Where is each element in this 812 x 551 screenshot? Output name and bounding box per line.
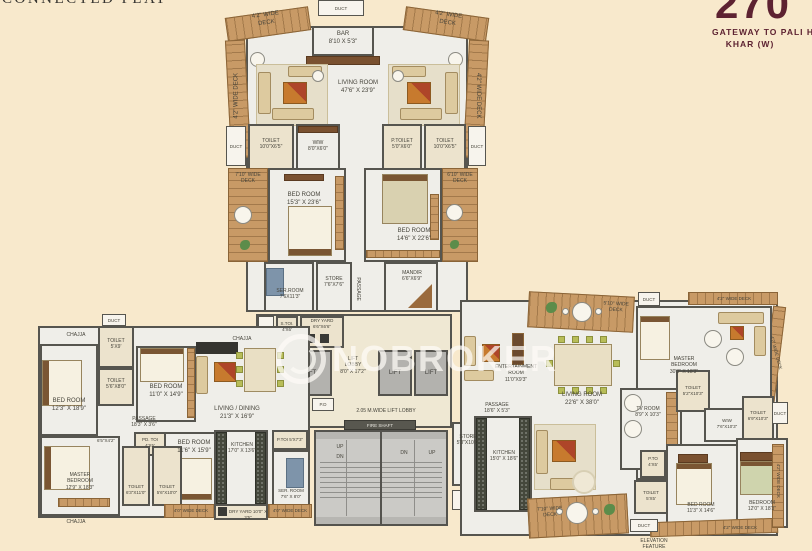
label-bar: BAR8'10 X 5'3" (314, 31, 372, 46)
dining-chair (600, 336, 607, 343)
deck-table (572, 302, 592, 322)
kitchen-counter (476, 418, 487, 510)
duct-rw-bottom: DUCT (630, 519, 658, 532)
toilet-lw-3 (122, 446, 150, 506)
coffee-table (482, 344, 500, 362)
label-store-top: STORE7'6"X7'6" (317, 276, 351, 289)
label-master-bedroom-rw: MASTERBEDROOM30'3" X 18'3" (656, 356, 712, 375)
label-living-room-top: LIVING ROOM47'6" X 23'9" (318, 80, 398, 95)
wardrobe-shelf (298, 126, 338, 133)
label-toilet-rw-1: TOILET5'2"X10'3" (676, 385, 710, 396)
wardrobe (58, 498, 110, 507)
deck-chair (562, 308, 569, 315)
deck-table (234, 206, 252, 224)
logo-number: 270 (688, 0, 812, 25)
label-entertainment-room: ENTERTAINMENTROOM11'0"X9'3" (490, 364, 542, 383)
duct-rw-mid: DUCT (772, 402, 788, 424)
lounge-chair (624, 420, 642, 438)
lift-3: LIFT (414, 350, 448, 396)
bed (288, 206, 332, 256)
label-bedroom-lw-1: BED ROOM12'3" X 18'9" (44, 398, 94, 413)
label-master-bedroom-lw: MASTERBEDROOM12'9" X 18'3" (50, 472, 110, 491)
page-title: CONNECTED FLAT (2, 0, 167, 8)
sofa (464, 336, 476, 366)
label-kitchen-rw: KITCHEN15'0" X 18'6" (482, 450, 526, 463)
label-mandir: MANDIR6'6"X6'9" (392, 270, 432, 283)
label-bedroom-top-left: BED ROOM15'3" X 23'6" (276, 192, 332, 207)
label-toilet-top-right: TOILET10'0"X6'5" (426, 138, 464, 151)
label-deck-mid-right: 6'10" WIDEDECK (443, 172, 477, 185)
label-powder-toilet-lw2: P.TOI 5'X7'3" (273, 437, 307, 443)
wardrobe (335, 176, 344, 250)
bed (382, 174, 428, 224)
bed (140, 348, 184, 382)
dining-chair (277, 352, 284, 359)
deck-table (566, 502, 588, 524)
coffee-table (214, 362, 236, 382)
lounge-chair (726, 348, 744, 366)
label-stair-up: UP (332, 444, 348, 450)
headboard-band (740, 452, 774, 461)
label-deck-rw-5: 4'2" WIDE DECK (702, 525, 778, 531)
coffee-table (407, 82, 431, 104)
dining-table (554, 344, 612, 386)
sofa (536, 430, 548, 474)
wood-band (366, 250, 440, 258)
dining-chair (277, 366, 284, 373)
label-toilet-lw-1: TOILET5'X9' (99, 338, 133, 351)
label-ptoilet-top-right: P.TOILET5'0"X6'0" (383, 138, 421, 151)
label-bedroom-lw-3: BED ROOM11'6" X 15'9" (170, 440, 218, 455)
label-living-dining: LIVING / DINING21'3" X 16'9" (204, 406, 270, 421)
label-deck-lw-1: 4'0" WIDE DECK (166, 508, 216, 514)
label-toilet-rw-3: TOILET5'X5' (635, 490, 667, 501)
label-wiw-top: WIW8'0"X6'0" (298, 140, 338, 153)
sofa (445, 72, 458, 114)
label-deck-mid-left: 7'10" WIDEDECK (229, 172, 267, 185)
label-toilet-top-left: TOILET10'0"X6'5" (250, 138, 292, 151)
headboard-band (678, 454, 708, 463)
bed (676, 463, 712, 505)
label-bedroom-rw-1: BED ROOM11'3" X 14'6" (670, 502, 732, 515)
label-deck-rw-top: 5'10" WIDEDECK (598, 300, 635, 314)
dining-chair (236, 366, 243, 373)
logo-location: KHAR (W) (700, 39, 800, 49)
washing-machine (218, 507, 227, 516)
fire-shaft: FIRE SHAFT (344, 420, 416, 430)
label-deck-rw-4: 7'10" WIDEDECK (532, 505, 569, 519)
stair-rail (414, 440, 415, 516)
sofa (400, 108, 442, 120)
label-chajja: CHAJJA (220, 336, 264, 342)
label-servant-room-top: SER.ROOM7'6X11'3" (268, 288, 312, 301)
dining-chair (236, 380, 243, 387)
label-chajja: CHAJJA (54, 519, 98, 525)
label-deck-lw-2: 4'0" WIDE DECK (269, 508, 311, 514)
label-bedroom-lw-2: BED ROOM11'0" X 14'9" (140, 384, 192, 399)
label-wiw-rw: WIW7'6"X10'3" (710, 418, 744, 429)
dining-chair (558, 336, 565, 343)
label-lobby-width: 2.05 M.WIDE LIFT LOBBY (324, 408, 448, 414)
label-dry-yard-core: DRY YARD6'6"X6'6" (302, 318, 342, 329)
label-powder-toilet-rw: P.TO4'X5' (640, 456, 666, 467)
lift-2: LIFT (378, 350, 412, 396)
dining-chair (586, 336, 593, 343)
label-tv-room: TV ROOM8'9" X 10'3" (628, 406, 668, 419)
dining-chair (546, 360, 553, 367)
sofa (754, 326, 766, 356)
label-toilet-lw-4: TOILET5'6"X10'0" (151, 484, 183, 495)
wardrobe (187, 348, 195, 418)
label-dry-yard-lw: DRY YARD 10'0" X 3'5" (228, 509, 268, 520)
sofa (718, 312, 764, 324)
coffee-table (283, 82, 307, 104)
washing-machine (320, 334, 329, 343)
tv-wall (512, 333, 524, 365)
label-bedroom-top-right: BED ROOM14'6" X 22'6" (388, 228, 440, 243)
floor-plan-canvas: CONNECTED FLAT 270 GATEWAY TO PALI HILL … (0, 0, 812, 551)
label-toilet-lw-2: TOILET5'6"X8'0" (99, 378, 133, 391)
label-chajja: CHAJJA (54, 332, 98, 338)
label-lift-lobby: LIFTLOBBY8'0" X 17'2" (330, 356, 376, 375)
sofa (258, 72, 271, 114)
label-stair-dn: DN (332, 454, 348, 460)
duct-top: DUCT (318, 0, 364, 16)
label-toilet-lw-3: TOILET6'3"X11'0" (121, 484, 151, 495)
label-toilet-rw-2: TOILET6'9"X10'3" (742, 410, 774, 421)
coffee-table (552, 440, 576, 462)
round-rug (572, 470, 596, 494)
label-deck-rw-6: 4'2" WIDE DECK (775, 448, 781, 514)
sofa (272, 108, 314, 120)
console (284, 174, 324, 181)
dining-table (244, 348, 276, 392)
dining-chair (613, 360, 620, 367)
label-deck-left-vertical: 4'2" WIDE DECK (233, 53, 241, 139)
label-passage-lw: PASSAGE18'3" X 3'6" (116, 416, 172, 429)
deck-chair (592, 508, 599, 515)
label-kitchen-lw: KITCHEN17'0" X 13'6" (220, 442, 264, 455)
bed (740, 461, 774, 495)
label-servant-toilet-core: S.TOI.4'X6' (276, 321, 298, 332)
label-stair-dn: DN (396, 450, 412, 456)
stair-rail (346, 440, 347, 516)
dining-chair (277, 380, 284, 387)
toilet-lw-4 (152, 446, 182, 506)
label-store-core: STORE5'3"X10'0" (452, 434, 484, 447)
servant-bed (286, 458, 304, 488)
dining-chair (236, 352, 243, 359)
label-foyer-lw: 6'5"X4'2" (90, 438, 122, 444)
bed (640, 316, 670, 360)
label-powder-toilet-lw: PD. TOI4'X5' (135, 437, 165, 448)
label-deck-rw-2: 4'2" WIDE DECK (696, 296, 772, 302)
sofa (196, 356, 208, 394)
duct-rw-top: DUCT (638, 292, 660, 306)
label-elevation-feature: ELEVATIONFEATURE (622, 538, 686, 551)
lounge-chair (704, 330, 722, 348)
tv-unit (196, 342, 238, 354)
label-living-room-rw: LIVING ROOM22'6" X 38'0" (550, 392, 614, 407)
stair-divider (380, 432, 382, 524)
side-table (730, 326, 744, 340)
deck-table (446, 204, 463, 221)
mandir-platform (408, 284, 432, 308)
duct-left-wing: DUCT (102, 314, 126, 326)
label-stair-up: UP (424, 450, 440, 456)
label-passage-top: PASSAGE (355, 264, 361, 314)
label-servant-room-lw: SER. ROOM7'6" X 8'0" (273, 488, 309, 499)
label-deck-right-vertical: 4'2" WIDE DECK (473, 53, 481, 139)
dining-chair (572, 336, 579, 343)
label-passage-rw: PASSAGE18'6" X 5'3" (472, 402, 522, 415)
kitchen-counter (519, 418, 530, 510)
logo-tagline: GATEWAY TO PALI HILL (712, 27, 812, 37)
